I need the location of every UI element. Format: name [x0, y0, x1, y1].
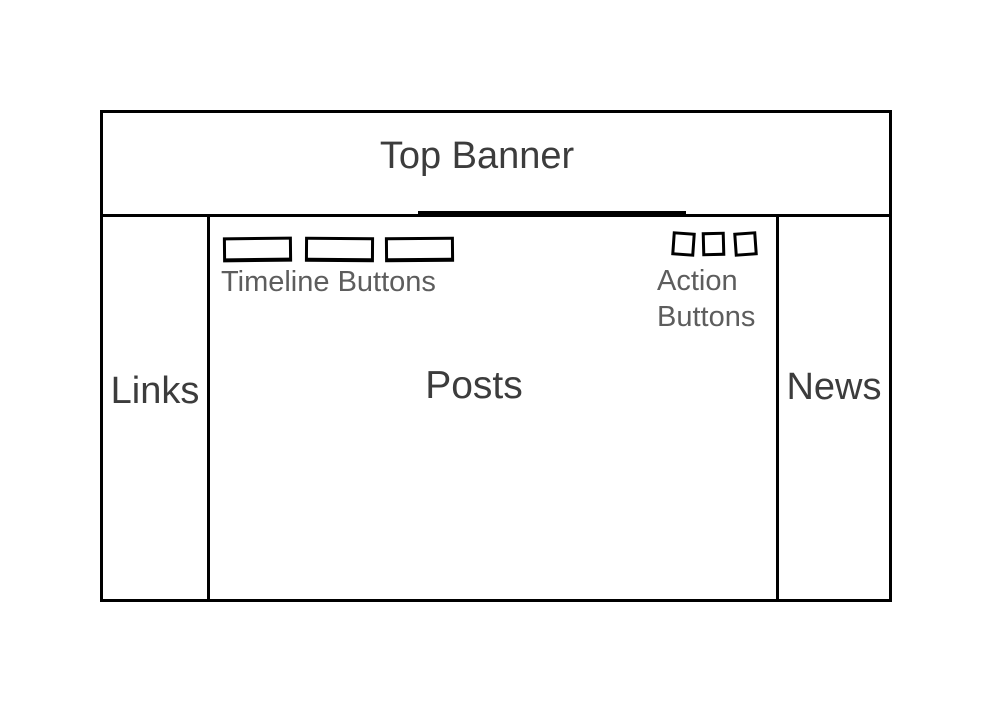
news-sidebar-region: News [776, 217, 889, 599]
banner-divider-stroke [418, 211, 686, 214]
timeline-button-3[interactable] [385, 237, 454, 263]
timeline-button-2[interactable] [305, 237, 374, 262]
action-button-2[interactable] [702, 232, 726, 257]
top-banner-label: Top Banner [380, 134, 574, 194]
timeline-buttons-label: Timeline Buttons [221, 264, 436, 300]
action-button-1[interactable] [671, 231, 696, 257]
links-sidebar-region: Links [103, 217, 210, 599]
page-outline: Top Banner Links News Timeline Buttons A… [100, 110, 892, 602]
wireframe-canvas: Top Banner Links News Timeline Buttons A… [0, 0, 1000, 713]
timeline-button-1[interactable] [223, 237, 292, 263]
action-buttons-label: Action Buttons [657, 263, 775, 335]
top-banner-region: Top Banner [103, 113, 889, 217]
news-label: News [779, 365, 889, 409]
posts-label: Posts [191, 364, 757, 408]
posts-region: Timeline Buttons Action Buttons Posts [210, 217, 776, 599]
action-button-3[interactable] [733, 231, 758, 257]
